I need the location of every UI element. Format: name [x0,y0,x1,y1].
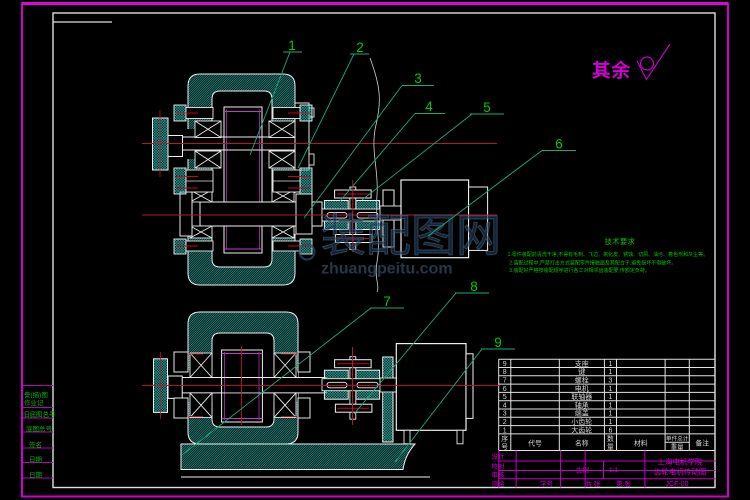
svg-text:2.装配过程中,严禁打击方式装配零件接触面及其配合子,避免损: 2.装配过程中,严禁打击方式装配零件接触面及其配合子,避免损坏不得破坏。 [509,260,676,267]
svg-text:1: 1 [608,361,612,368]
svg-text:1:1: 1:1 [609,467,618,474]
svg-text:3.装配好严格按装配顺序进行各工对相邻齿装配要,传额定负荷。: 3.装配好严格按装配顺序进行各工对相邻齿装配要,传额定负荷。 [509,267,650,274]
svg-text:旧底图总号: 旧底图总号 [23,410,56,419]
svg-text:设计: 设计 [492,452,506,461]
svg-text:量: 量 [607,443,614,451]
svg-text:4: 4 [425,99,433,114]
svg-text:日期: 日期 [29,456,43,464]
svg-text:数: 数 [607,434,614,443]
svg-text:6: 6 [555,137,563,152]
svg-text:1: 1 [503,427,507,434]
svg-text:1: 1 [608,419,612,426]
svg-text:1: 1 [288,38,296,53]
svg-text:作业记: 作业记 [24,398,44,407]
svg-text:名称: 名称 [575,439,589,448]
svg-text:校对: 校对 [492,462,506,471]
svg-text:8: 8 [470,279,478,294]
svg-text:3: 3 [414,71,422,86]
svg-text:1: 1 [608,411,612,418]
svg-text:联轴器: 联轴器 [571,392,592,401]
svg-text:螺栓: 螺栓 [575,376,589,385]
svg-text:其余: 其余 [592,60,631,81]
svg-text:6: 6 [503,386,507,393]
svg-text:5: 5 [483,100,491,115]
svg-text:5: 5 [503,394,507,401]
svg-text:4: 4 [503,402,507,409]
svg-text:上海电机学院: 上海电机学院 [658,457,703,467]
svg-text:比例: 比例 [576,465,589,474]
svg-text:日期: 日期 [29,471,43,479]
svg-text:端盖: 端盖 [575,409,589,418]
svg-text:装配图网: 装配图网 [321,210,501,261]
svg-text:技术要求: 技术要求 [605,237,636,246]
svg-text:轴承: 轴承 [575,400,589,409]
svg-text:审核: 审核 [492,470,506,479]
svg-text:学号: 学号 [540,479,554,488]
svg-text:代号: 代号 [528,439,542,448]
svg-text:序: 序 [501,434,508,443]
svg-text:备注: 备注 [696,439,710,448]
svg-text:3: 3 [608,378,612,385]
svg-text:1: 1 [608,369,612,376]
svg-text:小齿轮: 小齿轮 [571,417,592,426]
svg-text:JCF-00: JCF-00 [666,481,689,488]
svg-text:6: 6 [608,427,612,434]
svg-text:材料: 材料 [634,439,648,448]
svg-text:1: 1 [608,386,612,393]
svg-text:1.零件装配前清洗干净,不得有毛刺、飞边、氧化皮、锈蚀、切屑: 1.零件装配前清洗干净,不得有毛刺、飞边、氧化皮、锈蚀、切屑、油污、着色剂和灰尘… [508,251,709,258]
svg-text:底图总号: 底图总号 [26,424,53,433]
svg-text:电机: 电机 [575,384,589,393]
svg-text:9: 9 [503,361,507,368]
svg-text:7: 7 [503,378,507,385]
svg-text:1: 1 [608,402,612,409]
svg-text:号: 号 [501,443,508,451]
svg-text:重量: 重量 [671,443,684,451]
svg-text:zhuangpeitu.com: zhuangpeitu.com [321,261,453,278]
svg-text:键: 键 [578,367,585,376]
svg-text:大齿轮: 大齿轮 [571,425,592,434]
svg-text:9: 9 [494,335,502,350]
svg-text:支座: 支座 [575,359,589,368]
svg-text:1: 1 [608,394,612,401]
svg-text:7: 7 [383,294,391,309]
svg-text:齿轮电机传动图: 齿轮电机传动图 [654,467,707,477]
svg-text:测绘: 测绘 [492,479,506,488]
svg-text:2: 2 [356,40,364,55]
svg-text:3: 3 [503,411,507,418]
svg-text:2: 2 [503,419,507,426]
svg-text:签名: 签名 [29,440,42,449]
svg-text:单件总计: 单件总计 [666,435,689,443]
svg-text:第:张: 第:张 [616,479,631,488]
svg-text:誊(描)图: 誊(描)图 [24,390,48,399]
svg-text:共:张: 共:张 [586,479,601,488]
svg-text:8: 8 [503,369,507,376]
